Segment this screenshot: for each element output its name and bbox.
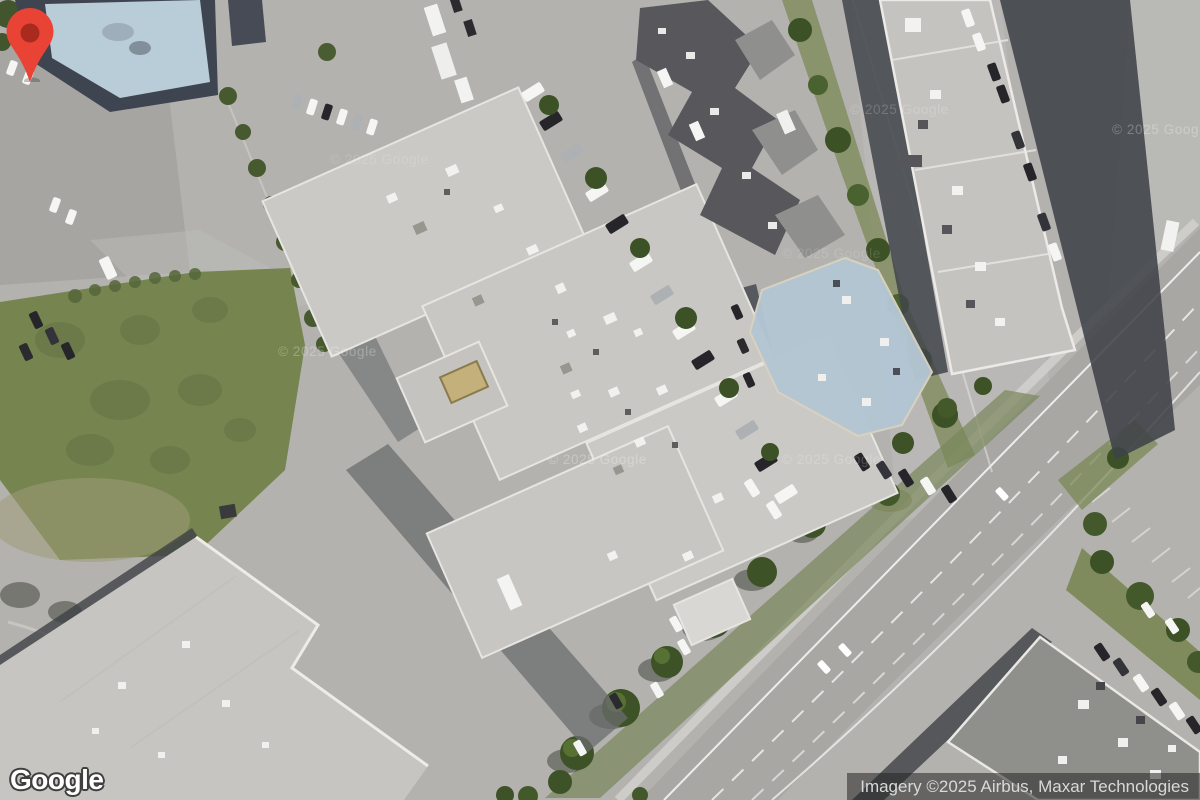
satellite-imagery — [0, 0, 1200, 800]
marker-inner-dot — [21, 24, 40, 43]
google-logo[interactable]: Google — [10, 764, 103, 796]
map-canvas[interactable]: © 2025 Google © 2025 Google © 2025 Googl… — [0, 0, 1200, 800]
imagery-attribution: Imagery ©2025 Airbus, Maxar Technologies — [847, 773, 1200, 800]
marker-body — [7, 8, 54, 82]
location-marker-pin[interactable] — [0, 0, 60, 82]
